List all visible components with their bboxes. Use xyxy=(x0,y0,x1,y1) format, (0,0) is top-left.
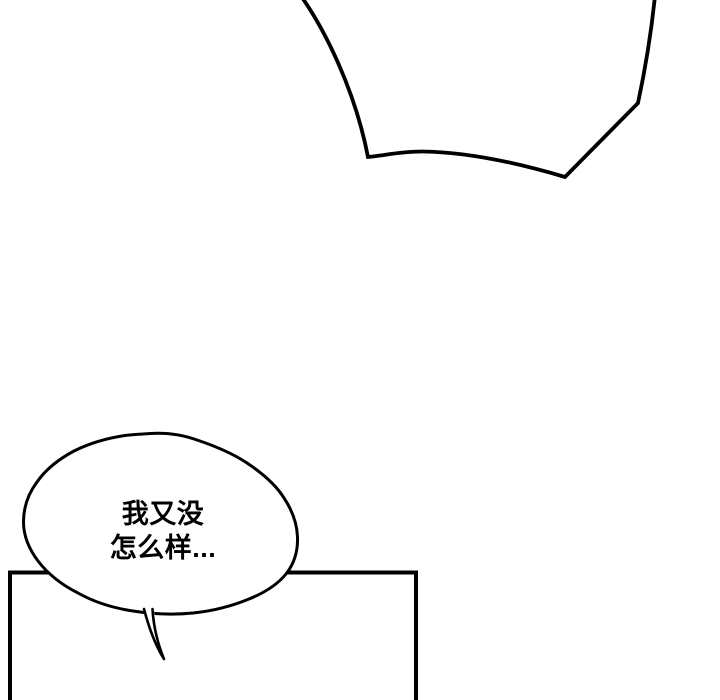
figure-outline-top xyxy=(301,0,655,177)
speech-line-2: 怎么样... xyxy=(83,531,243,565)
speech-line-1: 我又没 xyxy=(83,497,243,531)
speech-bubble-text: 我又没 怎么样... xyxy=(83,497,243,565)
comic-line-art xyxy=(0,0,720,700)
comic-page: 我又没 怎么样... xyxy=(0,0,720,700)
